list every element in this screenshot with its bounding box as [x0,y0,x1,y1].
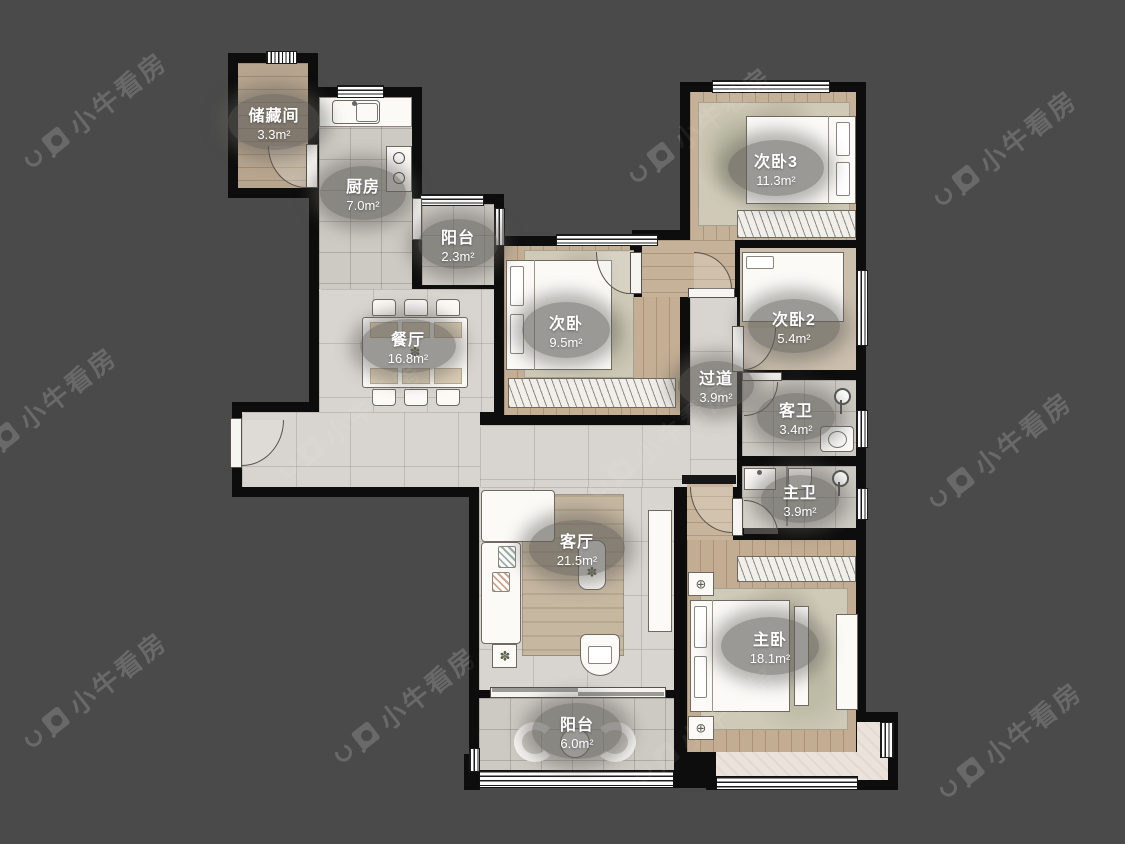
placemat [370,368,398,384]
window [266,51,297,64]
shower-bar [838,482,840,496]
window [856,410,868,448]
window [880,722,894,758]
tv-console [648,510,672,632]
pillow [836,162,850,196]
pillow [510,314,524,354]
pillow [746,256,774,269]
placemat [402,322,430,338]
armchair-cushion [588,646,612,664]
placemat [434,368,462,384]
balcony-railing [479,770,674,788]
sofa-cushion [492,572,510,592]
dining-chair [404,299,428,316]
door-sill [732,326,744,372]
blanket [712,600,713,712]
plant-icon: ✽ [500,650,511,663]
sofa-chaise [481,490,555,542]
plant-icon: ✽ [587,566,598,579]
faucet-icon [352,101,357,106]
dining-chair [436,389,460,406]
wardrobe [737,210,856,238]
window [856,270,868,346]
toilet-bowl [828,431,847,448]
window [337,85,384,98]
sliding-door-leaf [578,692,664,696]
floor-balcony-top [422,204,494,285]
dining-chair [436,299,460,316]
lamp-icon: ⊕ [696,722,707,735]
door-sill [732,498,743,536]
door-sill [742,372,782,381]
blanket [534,260,535,370]
blanket [828,116,829,204]
wardrobe [737,556,856,582]
balcony-railing [716,776,858,790]
window [469,748,480,772]
wall-master-door-header [682,475,736,484]
bed-bench [794,606,809,706]
burner-icon [393,172,405,184]
window [420,194,484,206]
window [556,234,658,246]
shower-icon [832,470,849,487]
balcony-chair [514,722,556,762]
dining-chair [372,299,396,316]
placemat [402,368,430,384]
window [712,80,830,93]
door-sill [412,198,422,240]
floors [0,0,1125,844]
floor-foyer-right [480,425,690,487]
balcony-chair [594,722,636,762]
window [856,488,868,520]
dining-chair [372,389,396,406]
plant-icon: ✽ [410,346,421,359]
sliding-door-leaf [492,688,578,692]
dining-chair [404,389,428,406]
door-sill [630,252,642,294]
lamp-icon: ⊕ [696,578,707,591]
placemat [434,322,462,338]
shower-icon [834,388,851,405]
door-sill [306,144,318,188]
balcony-table [560,728,590,758]
bay-window-seat [836,614,858,710]
pillow [510,266,524,306]
shower-bar [840,400,842,414]
toilet [788,468,812,490]
burner-icon [393,152,405,164]
window [494,208,505,246]
pillow [694,606,707,648]
wardrobe [508,378,676,408]
pillow [694,656,707,698]
floorplan-canvas: 小牛看房小牛看房小牛看房小牛看房小牛看房小牛看房小牛看房小牛看房小牛看房小牛看房… [0,0,1125,844]
floor-hallway [690,297,737,487]
sofa-cushion [498,546,516,568]
placemat [370,322,398,338]
door-sill [688,288,735,298]
pillow [836,122,850,156]
door-sill [230,418,242,468]
faucet-icon [757,470,762,475]
shower-glass [786,466,788,526]
sink-basin [356,103,378,122]
